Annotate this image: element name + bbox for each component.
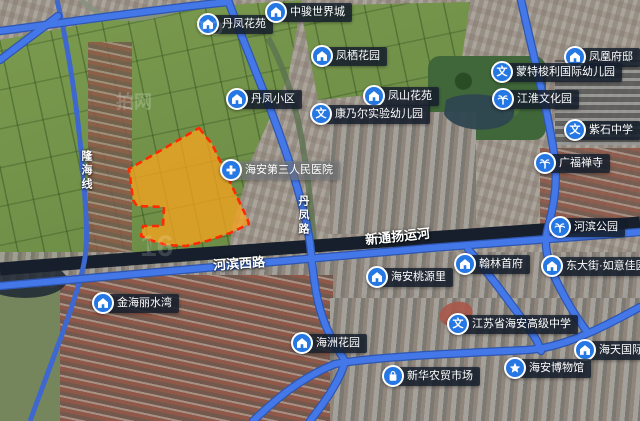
highlight-parcel[interactable] bbox=[129, 128, 249, 246]
poi-label: 河滨公园 bbox=[564, 218, 625, 237]
house-icon bbox=[291, 332, 313, 354]
tree-icon bbox=[534, 152, 556, 174]
poi-haian-taoyuanli[interactable]: 海安桃源里 bbox=[366, 266, 453, 288]
tree-icon bbox=[549, 216, 571, 238]
poi-label: 广福禅寺 bbox=[549, 154, 610, 173]
poi-haian-third-hospital[interactable]: 海安第三人民医院 bbox=[220, 159, 340, 181]
school-icon: 文 bbox=[564, 119, 586, 141]
road-label-0: 隆海线 bbox=[78, 150, 94, 192]
poi-label: 康乃尔实验幼儿园 bbox=[325, 105, 430, 124]
poi-label: 江淮文化园 bbox=[507, 90, 579, 109]
shopping-bag-icon bbox=[382, 365, 404, 387]
poi-dongdajie-ruyi[interactable]: 东大街·如意佳园 bbox=[541, 255, 640, 277]
poi-label: 金海丽水湾 bbox=[107, 294, 179, 313]
poi-hebin-park[interactable]: 河滨公园 bbox=[549, 216, 625, 238]
tree-icon bbox=[492, 88, 514, 110]
poi-montessori-kindergarten[interactable]: 文蒙特梭利国际幼儿园 bbox=[491, 61, 622, 83]
school-icon: 文 bbox=[447, 313, 469, 335]
poi-fengqi-garden[interactable]: 凤栖花园 bbox=[311, 45, 387, 67]
poi-hanlin-shoufu[interactable]: 翰林首府 bbox=[454, 253, 530, 275]
poi-label: 海安桃源里 bbox=[381, 268, 453, 287]
poi-zhongjun-world-city[interactable]: 中骏世界城 bbox=[265, 1, 352, 23]
house-icon bbox=[311, 45, 333, 67]
school-icon: 文 bbox=[491, 61, 513, 83]
poi-jinhai-lishuiwan[interactable]: 金海丽水湾 bbox=[92, 292, 179, 314]
poi-haian-museum[interactable]: 海安博物馆 bbox=[504, 357, 591, 379]
poi-label: 海天国际 bbox=[589, 341, 640, 360]
road-top-west bbox=[0, 2, 228, 31]
star-icon bbox=[504, 357, 526, 379]
house-icon bbox=[226, 88, 248, 110]
poi-label: 东大街·如意佳园 bbox=[556, 257, 640, 276]
hospital-icon bbox=[220, 159, 242, 181]
house-icon bbox=[541, 255, 563, 277]
house-icon bbox=[92, 292, 114, 314]
poi-jianghuai-culture-park[interactable]: 江淮文化园 bbox=[492, 88, 579, 110]
poi-label: 新华农贸市场 bbox=[397, 367, 480, 386]
poi-label: 海安博物馆 bbox=[519, 359, 591, 378]
poi-xinhua-market[interactable]: 新华农贸市场 bbox=[382, 365, 480, 387]
poi-zishi-middle-school[interactable]: 文紫石中学 bbox=[564, 119, 640, 141]
poi-haizhou-garden[interactable]: 海洲花园 bbox=[291, 332, 367, 354]
poi-danfeng-huayuan[interactable]: 丹凤花苑 bbox=[197, 13, 273, 35]
poi-label: 海洲花园 bbox=[306, 334, 367, 353]
road-label-1: 丹凤路 bbox=[295, 195, 311, 237]
poi-label: 紫石中学 bbox=[579, 121, 640, 140]
poi-label: 丹凤小区 bbox=[241, 90, 302, 109]
poi-label: 中骏世界城 bbox=[280, 3, 352, 22]
poi-label: 翰林首府 bbox=[469, 255, 530, 274]
poi-kangnaier-kindergarten[interactable]: 文康乃尔实验幼儿园 bbox=[310, 103, 430, 125]
poi-haian-high-school[interactable]: 文江苏省海安高级中学 bbox=[447, 313, 578, 335]
road-label-2: 河滨西路 bbox=[212, 251, 265, 274]
poi-guangfu-temple[interactable]: 广福禅寺 bbox=[534, 152, 610, 174]
poi-label: 凤栖花园 bbox=[326, 47, 387, 66]
poi-label: 江苏省海安高级中学 bbox=[462, 315, 578, 334]
house-icon bbox=[454, 253, 476, 275]
poi-label: 蒙特梭利国际幼儿园 bbox=[506, 63, 622, 82]
railway-longhai-line bbox=[30, 0, 87, 421]
road-top-branch bbox=[0, 16, 58, 60]
poi-label: 丹凤花苑 bbox=[212, 15, 273, 34]
house-icon bbox=[366, 266, 388, 288]
school-icon: 文 bbox=[310, 103, 332, 125]
poi-danfeng-community[interactable]: 丹凤小区 bbox=[226, 88, 302, 110]
house-icon bbox=[197, 13, 219, 35]
poi-label: 海安第三人民医院 bbox=[235, 161, 340, 180]
satellite-map[interactable]: 隆海线丹凤路河滨西路新通扬运河 丹凤花苑中骏世界城凤栖花园凤凰府邸丹凤小区凤山花… bbox=[0, 0, 640, 421]
house-icon bbox=[265, 1, 287, 23]
